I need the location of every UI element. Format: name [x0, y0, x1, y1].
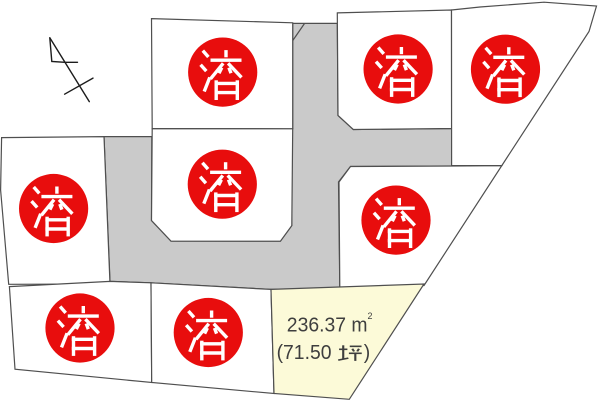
svg-text:(71.50: (71.50	[277, 342, 332, 365]
svg-text:236.37 m2: 236.37 m2	[287, 311, 373, 337]
svg-text:): )	[364, 342, 370, 365]
